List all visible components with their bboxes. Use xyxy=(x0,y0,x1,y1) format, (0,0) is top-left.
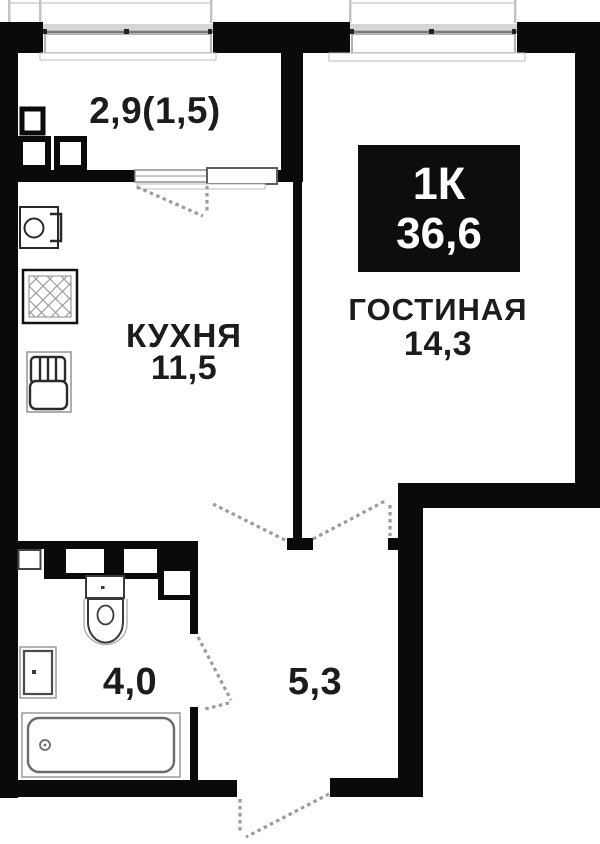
balcony-area-label: 2,9(1,5) xyxy=(65,92,245,131)
kitchen-door-swing xyxy=(213,504,287,541)
ac-unit-icon xyxy=(20,139,48,168)
apartment-total-area: 36,6 xyxy=(396,209,482,259)
bathtub-icon xyxy=(22,713,180,777)
living-door-swing xyxy=(313,500,390,539)
hallway-area-label: 5,3 xyxy=(265,663,365,703)
hob-icon xyxy=(23,270,77,323)
bathroom-area-label: 4,0 xyxy=(80,663,180,703)
floor-plan: 2,9(1,5) КУХНЯ 11,5 1К 36,6 ГОСТИНАЯ 14,… xyxy=(0,0,600,844)
balcony-door-window xyxy=(135,168,277,189)
stove-icon xyxy=(27,352,71,412)
balcony-door-swing xyxy=(137,186,207,216)
bathroom-door-swing xyxy=(198,637,231,709)
washbasin-icon xyxy=(20,647,56,698)
ac-unit-icon xyxy=(22,109,43,133)
kitchen-area-label: 11,5 xyxy=(94,351,274,387)
apartment-type-badge: 1К 36,6 xyxy=(358,145,520,272)
ac-unit-icon xyxy=(57,139,84,168)
living-room-label: ГОСТИНАЯ xyxy=(338,294,538,327)
apartment-type-label: 1К xyxy=(413,159,466,209)
balcony-window xyxy=(40,24,216,60)
entrance-door-swing xyxy=(240,794,329,837)
living-room-window xyxy=(329,24,525,61)
living-area-label: 14,3 xyxy=(338,327,538,363)
kitchen-sink-icon xyxy=(20,207,61,248)
toilet-icon xyxy=(84,576,127,644)
